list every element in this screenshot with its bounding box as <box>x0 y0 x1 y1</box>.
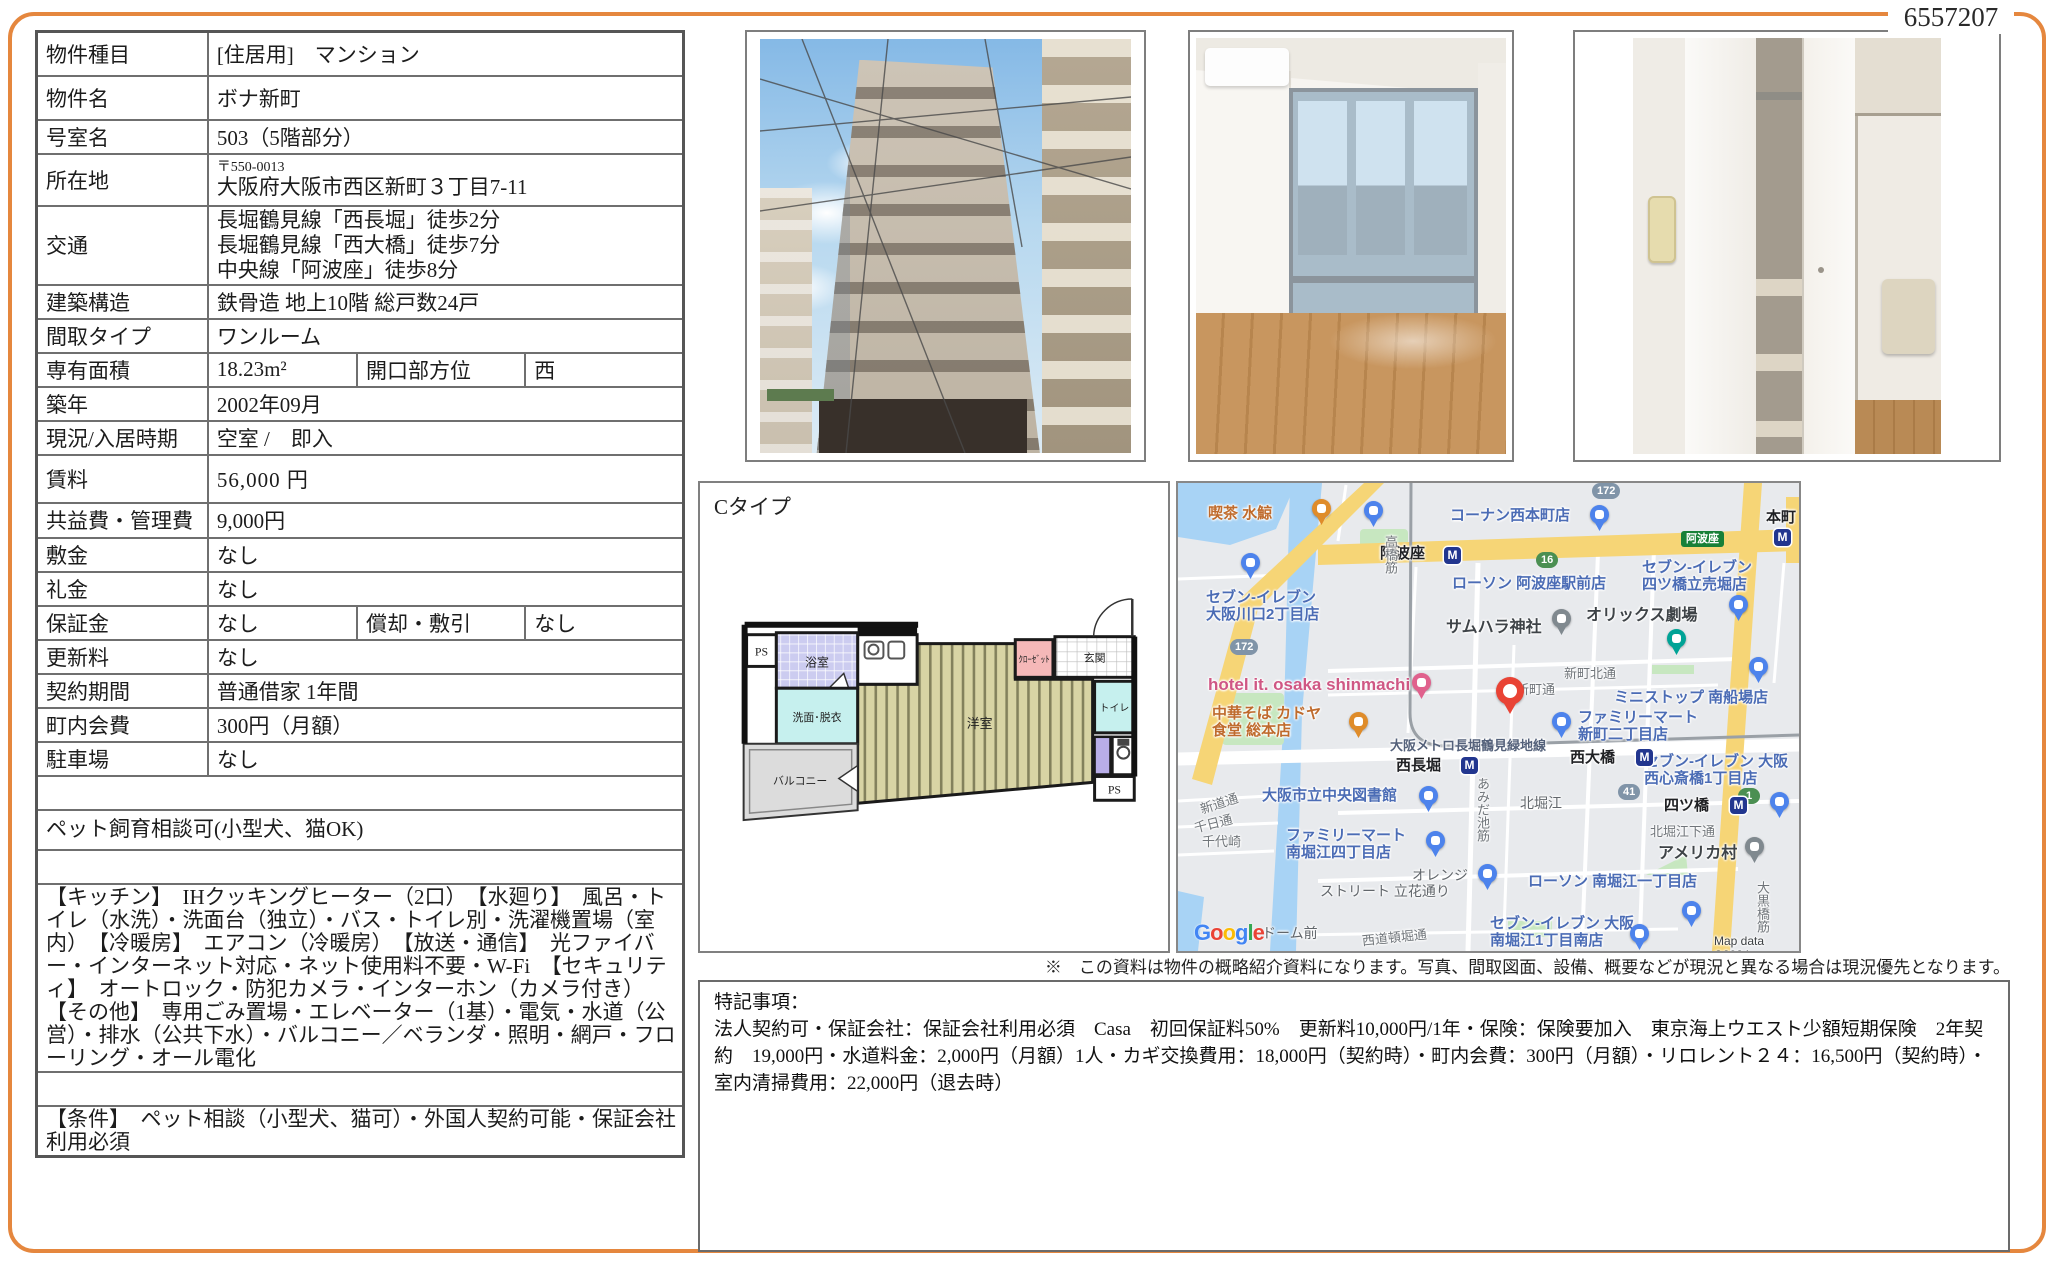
map-label: 北堀江 <box>1520 795 1562 811</box>
theater-marker-icon <box>1667 629 1686 648</box>
store-marker-icon <box>1478 864 1497 883</box>
map-label: hotel it. osaka shinmachi <box>1208 675 1410 695</box>
row-value: 300円（月額） <box>208 708 684 742</box>
row-label: 礼金 <box>37 572 208 606</box>
conditions-header: 条 件 <box>37 1072 684 1106</box>
right-wall <box>1478 63 1506 346</box>
power-lines <box>760 39 1131 453</box>
window-pane <box>1356 101 1405 255</box>
rent-value: 56,000 円 <box>208 455 684 503</box>
photo-interior-box <box>1188 30 1514 462</box>
map-label: ローソン 阿波座駅前店 <box>1452 575 1606 592</box>
row-value: なし <box>208 640 684 674</box>
door-knob <box>1818 267 1824 273</box>
room-label: 玄関 <box>1084 650 1106 664</box>
row-value: 西 <box>525 353 683 387</box>
metro-marker-icon: M <box>1730 797 1747 814</box>
map-label: 北堀江下通 <box>1650 825 1715 840</box>
closet-door-left <box>1685 38 1758 454</box>
floorplan-box: Cタイプ <box>698 481 1170 953</box>
map-disclaimer: ※ この資料は物件の概略紹介資料になります。写真、間取図面、設備、概要などが現況… <box>670 953 2010 978</box>
map-label: セブン-イレブン 大阪川口2丁目店 <box>1206 589 1319 624</box>
row-label: 間取タイプ <box>37 319 208 353</box>
lib-marker-icon <box>1419 786 1438 805</box>
map-label: 西道頓堀通 <box>1361 928 1427 950</box>
store-marker-icon <box>1364 501 1383 520</box>
transit-line: 長堀鶴見線「西大橋」徒歩7分 <box>217 233 676 258</box>
row-value: 長堀鶴見線「西長堀」徒歩2分 長堀鶴見線「西大橋」徒歩7分 中央線「阿波座」徒歩… <box>208 206 684 285</box>
map-label: 西長堀 <box>1396 757 1441 774</box>
road-badge: 阿波座 <box>1681 531 1724 547</box>
hanger-rod <box>1756 92 1802 100</box>
store-marker-icon <box>1552 712 1571 731</box>
map-label: 大阪メトロ長堀鶴見緑地線 <box>1390 739 1546 754</box>
metro-marker-icon: M <box>1636 749 1653 766</box>
left-wall <box>1196 71 1291 329</box>
map-label: 西大橋 <box>1570 749 1615 766</box>
air-conditioner <box>1205 48 1289 85</box>
room-label: バルコニー <box>773 775 827 787</box>
map-overlay: 喫茶 水鯨コーナン西本町店阿波座本町ローソン 阿波座駅前店セブン-イレブン 大阪… <box>1178 483 1799 951</box>
row-value: ワンルーム <box>208 319 684 353</box>
room-label: PS <box>1108 782 1121 796</box>
map-label: セブン-イレブン 大阪 西心斎橋1丁目店 <box>1644 753 1788 788</box>
rest-marker-icon <box>1349 712 1368 731</box>
google-logo: Google <box>1194 921 1264 945</box>
row-label: 更新料 <box>37 640 208 674</box>
row-label: 号室名 <box>37 120 208 154</box>
table-row: 礼金なし <box>37 572 684 606</box>
map-label: ローソン 南堀江一丁目店 <box>1528 873 1697 890</box>
table-row: 保証金なし償却・敷引なし <box>37 606 684 640</box>
map-label: ミニストップ 南船場店 <box>1614 689 1768 706</box>
row-label: 町内会費 <box>37 708 208 742</box>
shop-marker-icon <box>1590 505 1609 524</box>
room-label: 洗面･脱衣 <box>792 710 841 724</box>
room-label: トイレ <box>1100 703 1130 714</box>
row-label: 償却・敷引 <box>357 606 525 640</box>
table-row: 所在地 〒550-0013大阪府大阪市西区新町３丁目7-11 <box>37 154 684 206</box>
wall-heater <box>1882 279 1934 354</box>
row-value: [住居用] マンション <box>208 32 684 76</box>
table-row: 専有面積18.23m²開口部方位西 <box>37 353 684 387</box>
row-value: 503（5階部分） <box>208 120 684 154</box>
map-label: 千日通 <box>1193 813 1234 837</box>
room-label: 洋室 <box>967 716 993 731</box>
road-badge: 41 <box>1618 784 1640 800</box>
table-row: 建築構造鉄骨造 地上10階 総戸数24戸 <box>37 285 684 319</box>
row-value: 〒550-0013大阪府大阪市西区新町３丁目7-11 <box>208 154 684 206</box>
road-badge: 16 <box>1536 552 1558 568</box>
row-label: 交通 <box>37 206 208 285</box>
road-badge: 172 <box>1230 639 1258 655</box>
remarks-header: 備 考 <box>37 776 684 810</box>
floorplan-drawing: PS 浴室 洗面･脱衣 バルコニー 洋室 ｸﾛｰｾﾞｯﾄ 玄関 トイレ PS <box>700 483 1164 947</box>
table-row: 賃料56,000 円 <box>37 455 684 503</box>
store-marker-icon <box>1630 924 1649 943</box>
store-marker-icon <box>1241 553 1260 572</box>
postal-code: 〒550-0013 <box>217 160 676 175</box>
map-label: 千代崎 <box>1202 835 1241 850</box>
attr-marker-icon <box>1745 837 1764 856</box>
row-label: 駐車場 <box>37 742 208 776</box>
map-label: Map data ©2024 <box>1714 935 1799 953</box>
map-label: 中華そば カドヤ 食堂 総本店 <box>1212 705 1321 740</box>
shelf <box>1756 354 1802 371</box>
store-marker-icon <box>1770 792 1789 811</box>
building-photo <box>760 39 1131 453</box>
closet-door-right <box>1802 38 1856 454</box>
metro-marker-icon: M <box>1444 547 1461 564</box>
map-label: セブン-イレブン 四ツ橋立売堀店 <box>1642 559 1752 594</box>
location-map: 喫茶 水鯨コーナン西本町店阿波座本町ローソン 阿波座駅前店セブン-イレブン 大阪… <box>1176 481 1801 953</box>
equipment-header: 設 備 <box>37 850 684 884</box>
interior-photo <box>1196 38 1506 454</box>
table-row: 号室名503（5階部分） <box>37 120 684 154</box>
document-number: 6557207 <box>1888 0 2014 34</box>
row-label: 所在地 <box>37 154 208 206</box>
transit-line: 長堀鶴見線「西長堀」徒歩2分 <box>217 208 676 233</box>
special-notes-box: 特記事項： 法人契約可・保証会社：保証会社利用必須 Casa 初回保証料50% … <box>698 980 2010 1252</box>
table-row: 物件名ボナ新町 <box>37 76 684 120</box>
table-row: 間取タイプワンルーム <box>37 319 684 353</box>
map-label: ドーム前 <box>1262 925 1318 941</box>
cafe-marker-icon <box>1312 499 1331 518</box>
shelf <box>1756 421 1802 438</box>
row-value: なし <box>208 742 684 776</box>
map-label: コーナン西本町店 <box>1450 507 1570 524</box>
map-label: あみだ池筋 <box>1474 777 1489 842</box>
special-notes-title: 特記事項： <box>714 990 1994 1017</box>
dest-marker-icon <box>1496 677 1524 705</box>
store-marker-icon <box>1729 595 1748 614</box>
transit-line: 中央線「阿波座」徒歩8分 <box>217 258 676 283</box>
table-row: 築年2002年09月 <box>37 387 684 421</box>
table-row: 交通 長堀鶴見線「西長堀」徒歩2分 長堀鶴見線「西大橋」徒歩7分 中央線「阿波座… <box>37 206 684 285</box>
row-label: 現況/入居時期 <box>37 421 208 455</box>
intercom-handset <box>1648 196 1676 263</box>
row-value: 鉄骨造 地上10階 総戸数24戸 <box>208 285 684 319</box>
photo-exterior-box <box>745 30 1146 462</box>
hallway-floor <box>1855 400 1941 454</box>
shelf <box>1756 279 1802 296</box>
map-label: ストリート 立花通り <box>1320 883 1450 899</box>
map-label: アメリカ村 <box>1658 845 1737 863</box>
row-value: 2002年09月 <box>208 387 684 421</box>
equipment-text: 【キッチン】 IHクッキングヒーター（2口） 【水廻り】 風呂・トイレ（水洗）・… <box>37 884 684 1072</box>
row-value: なし <box>525 606 683 640</box>
map-label: 喫茶 水鯨 <box>1208 505 1272 522</box>
floorplan-type-label: Cタイプ <box>714 491 791 521</box>
table-row: 共益費・管理費9,000円 <box>37 503 684 538</box>
table-row: 現況/入居時期空室 / 即入 <box>37 421 684 455</box>
window-wall <box>1289 88 1478 329</box>
remarks-text: ペット飼育相談可(小型犬、猫OK) <box>37 810 684 850</box>
table-row: 町内会費300円（月額） <box>37 708 684 742</box>
map-label: オレンジ <box>1412 867 1468 883</box>
property-sheet: 6557207 物件種目[住居用] マンション 物件名ボナ新町 号室名503（5… <box>0 0 2056 1265</box>
row-label: 物件種目 <box>37 32 208 76</box>
hallway-doorframe <box>1855 38 1941 116</box>
closet-photo <box>1633 38 1941 454</box>
metro-marker-icon: M <box>1461 757 1478 774</box>
row-value: ボナ新町 <box>208 76 684 120</box>
store-marker-icon <box>1426 831 1445 850</box>
map-label: ファミリーマート 南堀江四丁目店 <box>1286 827 1406 862</box>
map-label: サムハラ神社 <box>1446 619 1542 637</box>
window-pane <box>1298 101 1347 255</box>
store-marker-icon <box>1682 901 1701 920</box>
row-label: 賃料 <box>37 455 208 503</box>
special-notes-body: 法人契約可・保証会社：保証会社利用必須 Casa 初回保証料50% 更新料10,… <box>714 1017 1994 1098</box>
table-row: 更新料なし <box>37 640 684 674</box>
row-label: 専有面積 <box>37 353 208 387</box>
map-label: オリックス劇場 <box>1586 607 1698 625</box>
row-label: 建築構造 <box>37 285 208 319</box>
shrine-marker-icon <box>1552 609 1571 628</box>
row-value: 空室 / 即入 <box>208 421 684 455</box>
map-label: 大黒橋筋 <box>1754 881 1769 933</box>
metro-marker-icon: M <box>1774 529 1791 546</box>
room-label: PS <box>755 645 768 659</box>
map-label: 大阪市立中央図書館 <box>1262 787 1397 804</box>
row-label: 敷金 <box>37 538 208 572</box>
photo-closet-box <box>1573 30 2001 462</box>
map-label: 本町 <box>1766 509 1796 526</box>
row-label: 物件名 <box>37 76 208 120</box>
window-pane <box>1414 101 1467 255</box>
row-value: なし <box>208 538 684 572</box>
road-badge: 172 <box>1592 483 1620 499</box>
row-label: 築年 <box>37 387 208 421</box>
room-label: ｸﾛｰｾﾞｯﾄ <box>1019 654 1050 664</box>
row-value: 9,000円 <box>208 503 684 538</box>
wood-floor <box>1196 313 1506 454</box>
map-label: セブン-イレブン 大阪 南堀江1丁目南店 <box>1490 915 1634 950</box>
row-label: 共益費・管理費 <box>37 503 208 538</box>
table-row: 契約期間普通借家 1年間 <box>37 674 684 708</box>
row-value: 普通借家 1年間 <box>208 674 684 708</box>
map-label: 四ツ橋 <box>1664 797 1709 814</box>
hotel-marker-icon <box>1412 673 1431 692</box>
row-label: 開口部方位 <box>357 353 525 387</box>
map-label: 新町北通 <box>1564 667 1616 682</box>
address: 大阪府大阪市西区新町３丁目7-11 <box>217 175 676 199</box>
map-label: 高橋筋 <box>1382 535 1397 574</box>
row-label: 保証金 <box>37 606 208 640</box>
store-marker-icon <box>1749 657 1768 676</box>
row-label: 契約期間 <box>37 674 208 708</box>
property-table: 物件種目[住居用] マンション 物件名ボナ新町 号室名503（5階部分） 所在地… <box>35 30 685 1158</box>
conditions-text: 【条件】 ペット相談（小型犬、猫可）・外国人契約可能・保証会社利用必須 <box>37 1106 684 1157</box>
balcony-rail <box>1293 276 1474 283</box>
row-value: 18.23m² <box>208 353 357 387</box>
room-label: 浴室 <box>805 655 829 669</box>
table-row: 駐車場なし <box>37 742 684 776</box>
closet-interior <box>1756 38 1802 454</box>
row-value: なし <box>208 572 684 606</box>
table-row: 物件種目[住居用] マンション <box>37 32 684 76</box>
row-value: なし <box>208 606 357 640</box>
map-label: ファミリーマート 新町二丁目店 <box>1578 709 1698 744</box>
table-row: 敷金なし <box>37 538 684 572</box>
